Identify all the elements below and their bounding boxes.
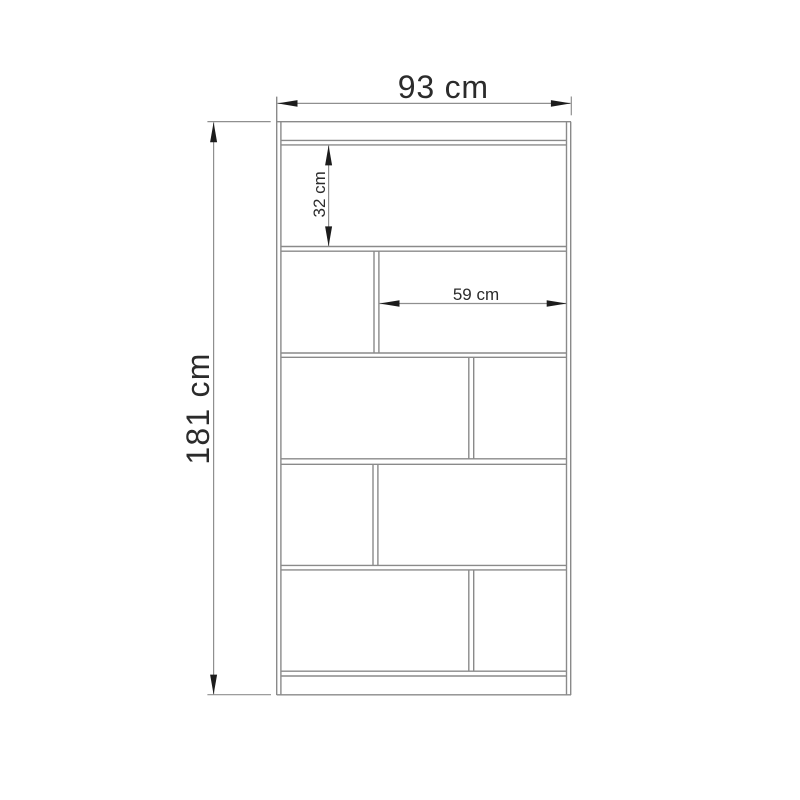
svg-text:32 cm: 32 cm	[310, 171, 329, 217]
svg-text:93 cm: 93 cm	[398, 69, 489, 105]
svg-text:181 cm: 181 cm	[180, 352, 216, 464]
svg-text:59 cm: 59 cm	[453, 285, 499, 304]
